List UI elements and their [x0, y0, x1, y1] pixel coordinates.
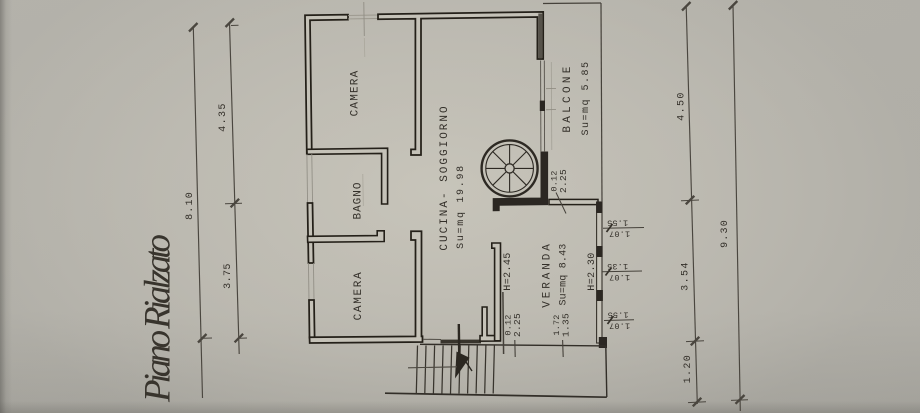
svg-text:3.54: 3.54	[681, 261, 692, 291]
svg-text:BALCONE: BALCONE	[562, 63, 574, 132]
svg-text:CAMERA: CAMERA	[349, 70, 361, 117]
svg-text:Su=mq 8.43: Su=mq 8.43	[559, 243, 570, 305]
svg-text:1.07: 1.07	[609, 272, 630, 282]
svg-text:BAGNO: BAGNO	[352, 181, 364, 219]
svg-text:Su=mq 19.98: Su=mq 19.98	[456, 164, 467, 249]
svg-text:1.35: 1.35	[560, 313, 571, 337]
svg-text:1.07: 1.07	[609, 321, 630, 331]
svg-text:1.07: 1.07	[609, 229, 630, 239]
svg-text:H=2.30: H=2.30	[587, 252, 598, 290]
svg-text:Piano Rialzato: Piano Rialzato	[138, 234, 179, 403]
svg-text:1.35: 1.35	[607, 261, 628, 271]
svg-text:CUCINA- SOGGIORNO: CUCINA- SOGGIORNO	[439, 104, 451, 250]
svg-text:1.20: 1.20	[683, 354, 694, 384]
svg-text:3.75: 3.75	[223, 263, 234, 289]
svg-text:8.10: 8.10	[185, 191, 196, 220]
svg-text:CAMERA: CAMERA	[353, 271, 365, 321]
svg-text:2.25: 2.25	[512, 313, 523, 337]
svg-text:VERANDA: VERANDA	[541, 241, 553, 308]
svg-text:1.55: 1.55	[607, 310, 628, 320]
svg-text:Su=mq 5.85: Su=mq 5.85	[581, 60, 592, 135]
svg-text:9.30: 9.30	[720, 219, 731, 248]
svg-text:4.50: 4.50	[677, 91, 688, 121]
svg-text:2.25: 2.25	[558, 169, 569, 193]
svg-text:1.55: 1.55	[607, 218, 628, 228]
svg-text:H=2.45: H=2.45	[503, 252, 514, 290]
svg-text:4.35: 4.35	[218, 102, 229, 132]
